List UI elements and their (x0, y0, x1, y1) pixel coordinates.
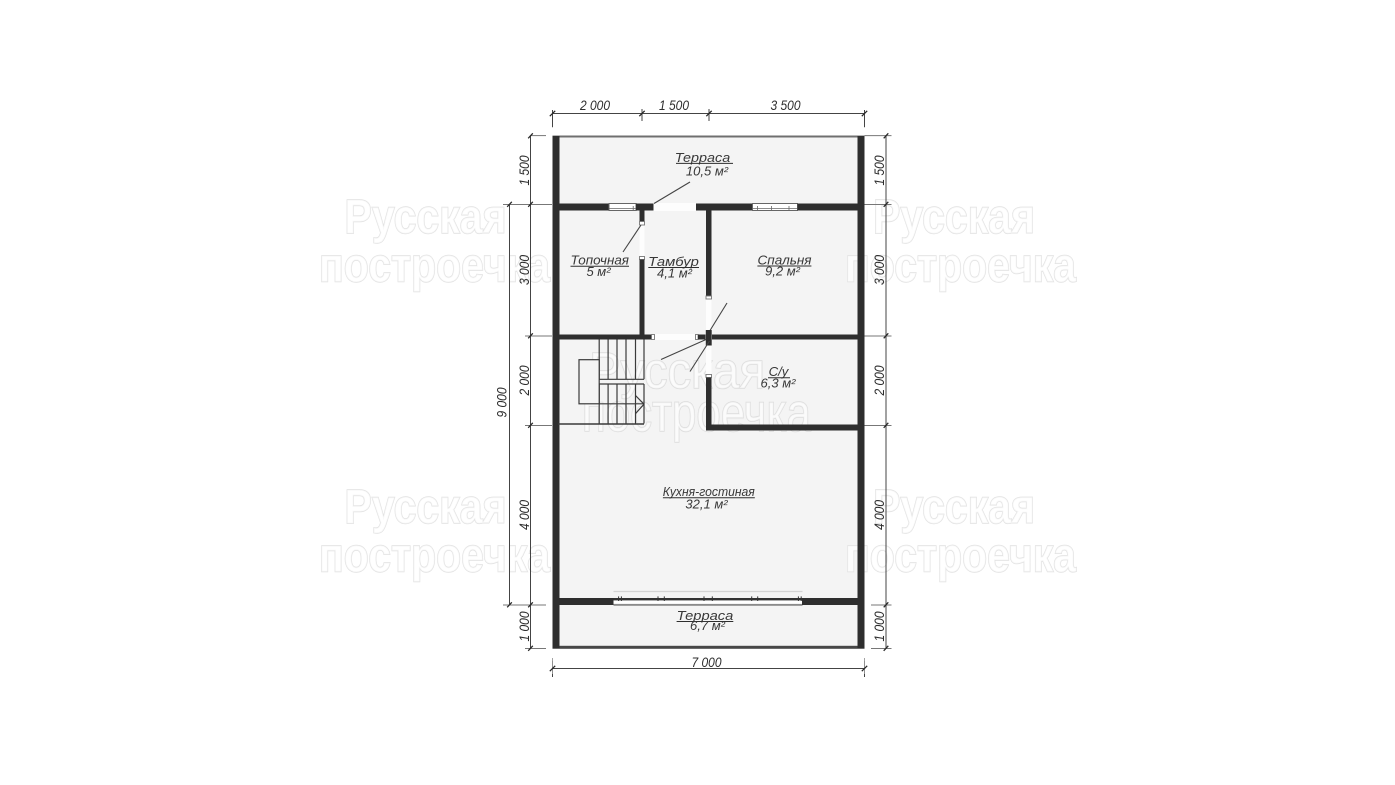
svg-text:10,5 м²: 10,5 м² (686, 163, 729, 178)
svg-text:4 000: 4 000 (517, 500, 532, 530)
svg-text:7 000: 7 000 (692, 655, 722, 670)
svg-text:3 000: 3 000 (517, 255, 532, 285)
svg-text:3 500: 3 500 (771, 98, 801, 113)
svg-text:построечка: построечка (319, 240, 550, 293)
svg-text:6,7 м²: 6,7 м² (690, 618, 726, 633)
svg-text:3 000: 3 000 (872, 255, 887, 285)
svg-text:9,2 м²: 9,2 м² (765, 264, 801, 279)
svg-text:1 500: 1 500 (872, 155, 887, 185)
svg-text:построечка: построечка (845, 530, 1076, 583)
svg-text:2 000: 2 000 (872, 365, 887, 396)
svg-text:5 м²: 5 м² (586, 264, 611, 279)
svg-text:Русская: Русская (873, 191, 1035, 244)
svg-text:Русская: Русская (345, 191, 507, 244)
svg-text:построечка: построечка (319, 530, 550, 583)
svg-text:1 500: 1 500 (517, 155, 532, 185)
svg-text:1 000: 1 000 (872, 611, 887, 641)
svg-text:4,1 м²: 4,1 м² (657, 266, 693, 281)
svg-text:Русская: Русская (345, 481, 507, 534)
svg-text:32,1 м²: 32,1 м² (685, 496, 728, 511)
svg-text:6,3 м²: 6,3 м² (761, 375, 797, 390)
svg-text:1 500: 1 500 (659, 98, 689, 113)
svg-text:2 000: 2 000 (517, 365, 532, 396)
svg-text:4 000: 4 000 (872, 500, 887, 530)
svg-text:1 000: 1 000 (517, 611, 532, 641)
svg-text:2 000: 2 000 (579, 98, 610, 113)
svg-text:9 000: 9 000 (495, 387, 510, 417)
svg-text:Русская: Русская (873, 481, 1035, 534)
